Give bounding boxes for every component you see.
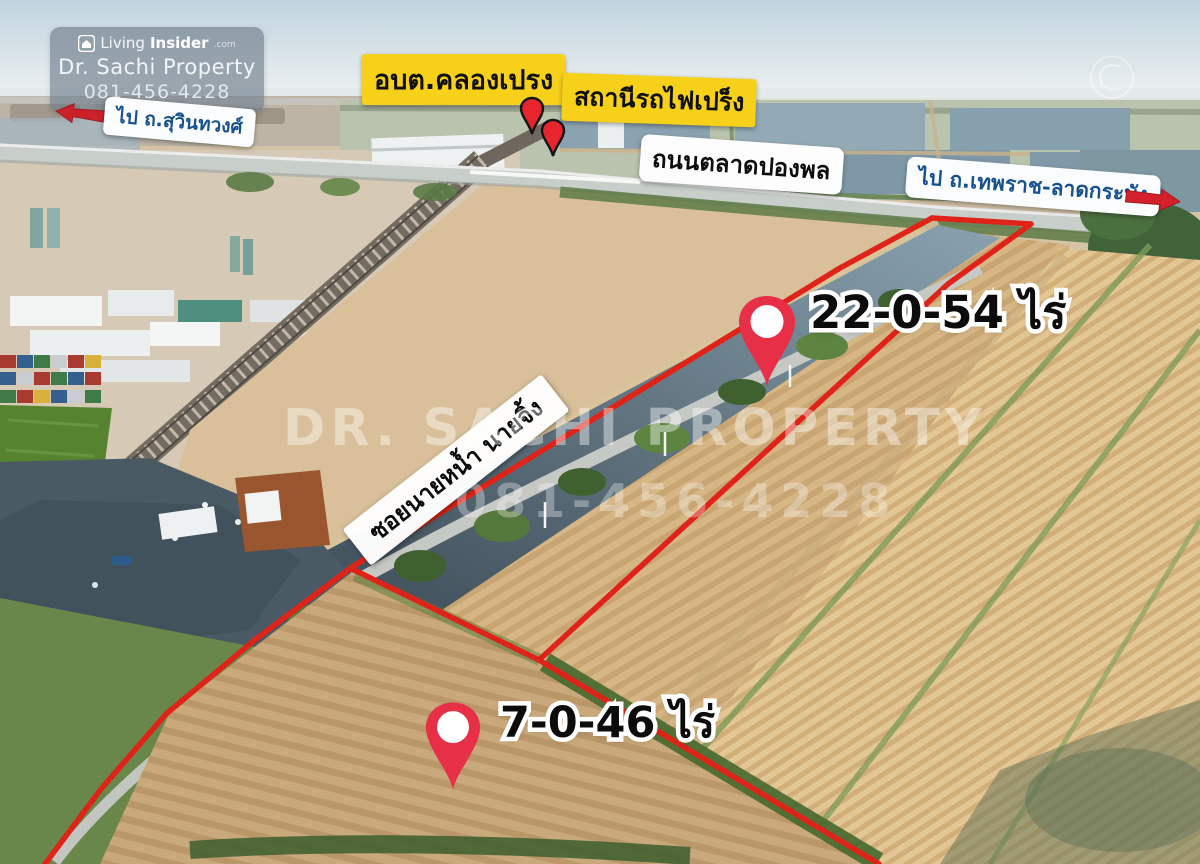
large-plot-area-text: 22-0-54 ไร่ xyxy=(810,286,1066,339)
large-plot-pin-icon xyxy=(736,294,798,388)
copyright-mark: © xyxy=(1082,44,1142,114)
listing-photo: LivingInsider.com Dr. Sachi Property 081… xyxy=(0,0,1200,864)
livinginsider-logo: LivingInsider.com xyxy=(58,34,256,52)
livinginsider-logo-icon xyxy=(78,35,95,52)
arrow-right-icon xyxy=(1123,181,1184,217)
small-plot-pin-icon xyxy=(423,700,483,792)
small-plot-area-label: 7-0-46 ไร่ 7-0-46 ไร่ xyxy=(500,702,715,745)
large-plot-area-label: 22-0-54 ไร่ 22-0-54 ไร่ xyxy=(810,290,1066,335)
agent-name: Dr. Sachi Property xyxy=(58,55,256,79)
small-plot-area-text: 7-0-46 ไร่ xyxy=(500,698,715,748)
watermark-phone: 081-456-4228 xyxy=(455,474,897,528)
logo-part2: Insider xyxy=(150,34,209,52)
station-pin-icon xyxy=(539,118,567,158)
logo-part1: Living xyxy=(100,34,145,52)
agent-phone: 081-456-4228 xyxy=(58,81,256,103)
logo-tld: .com xyxy=(214,40,236,52)
watermark-title: DR. SACHI PROPERTY xyxy=(283,399,987,458)
train-station-sign: สถานีรถไฟเปร็ง xyxy=(561,73,757,128)
